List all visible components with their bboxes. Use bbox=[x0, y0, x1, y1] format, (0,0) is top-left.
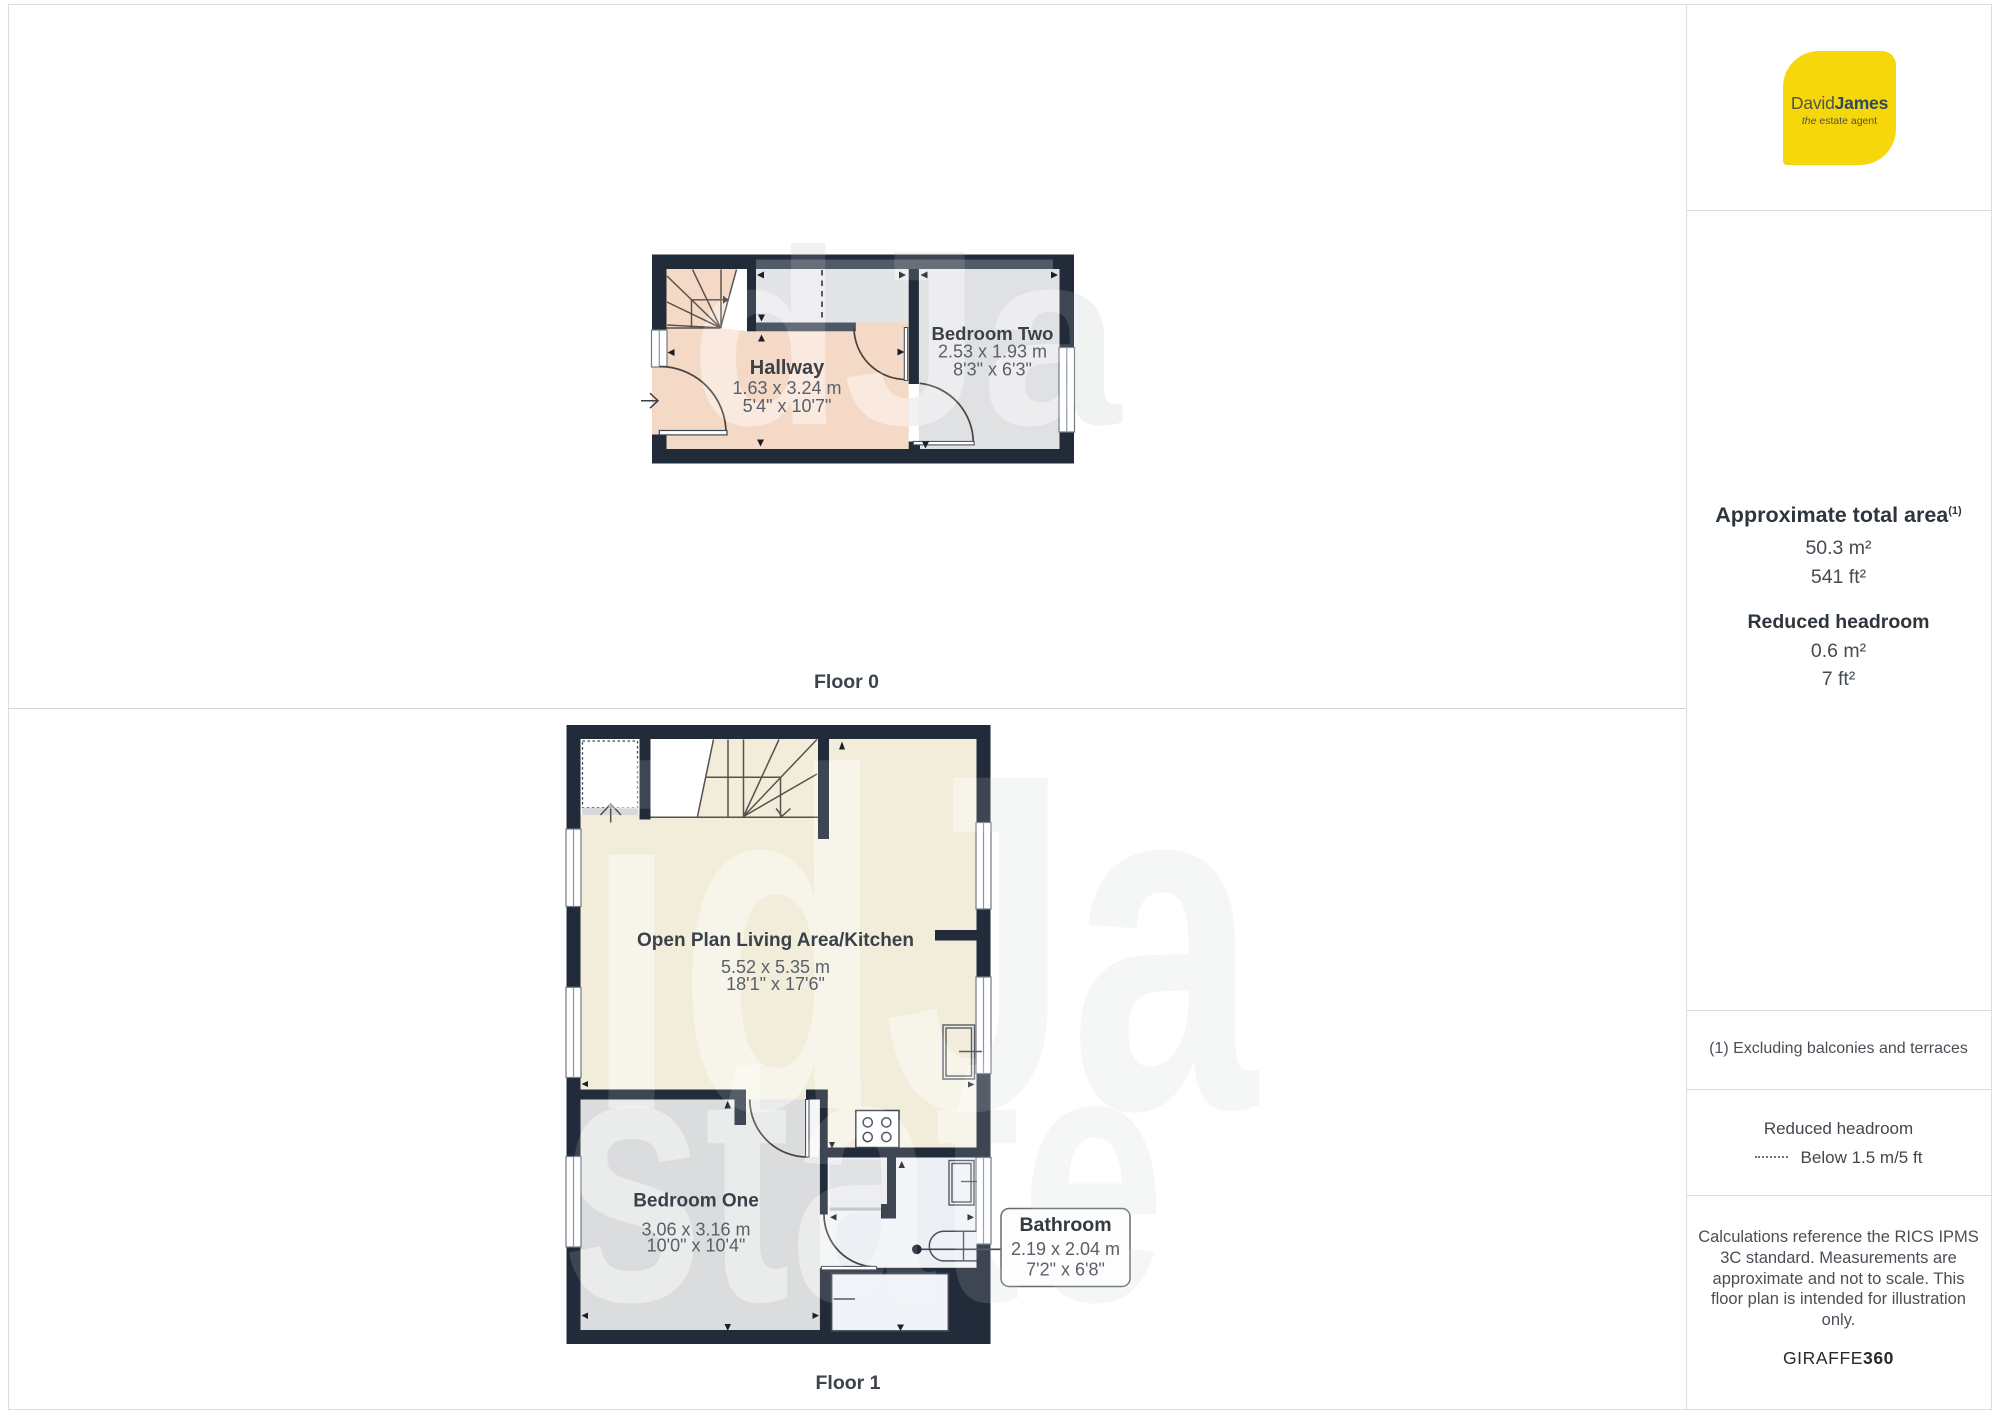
svg-text:7'2" x 6'8": 7'2" x 6'8" bbox=[1026, 1260, 1105, 1280]
svg-text:2.19 x 2.04 m: 2.19 x 2.04 m bbox=[1011, 1239, 1120, 1259]
svg-text:18'1" x 17'6": 18'1" x 17'6" bbox=[726, 974, 825, 994]
svg-text:5'4" x 10'7": 5'4" x 10'7" bbox=[743, 396, 832, 416]
svg-text:2.53 x 1.93 m: 2.53 x 1.93 m bbox=[938, 342, 1047, 362]
svg-text:Bedroom One: Bedroom One bbox=[633, 1191, 759, 1212]
svg-text:1.63 x 3.24 m: 1.63 x 3.24 m bbox=[732, 378, 841, 398]
svg-text:8'3" x 6'3": 8'3" x 6'3" bbox=[953, 360, 1032, 380]
svg-text:Bathroom: Bathroom bbox=[1019, 1214, 1111, 1236]
svg-text:state: state bbox=[560, 975, 1165, 1377]
svg-text:dJa: dJa bbox=[690, 198, 1123, 477]
svg-text:Floor 0: Floor 0 bbox=[814, 671, 879, 693]
svg-text:10'0" x 10'4": 10'0" x 10'4" bbox=[647, 1236, 746, 1256]
svg-text:Open Plan Living Area/Kitchen: Open Plan Living Area/Kitchen bbox=[637, 930, 914, 951]
svg-text:Hallway: Hallway bbox=[750, 357, 825, 379]
svg-text:Floor 1: Floor 1 bbox=[815, 1372, 880, 1394]
